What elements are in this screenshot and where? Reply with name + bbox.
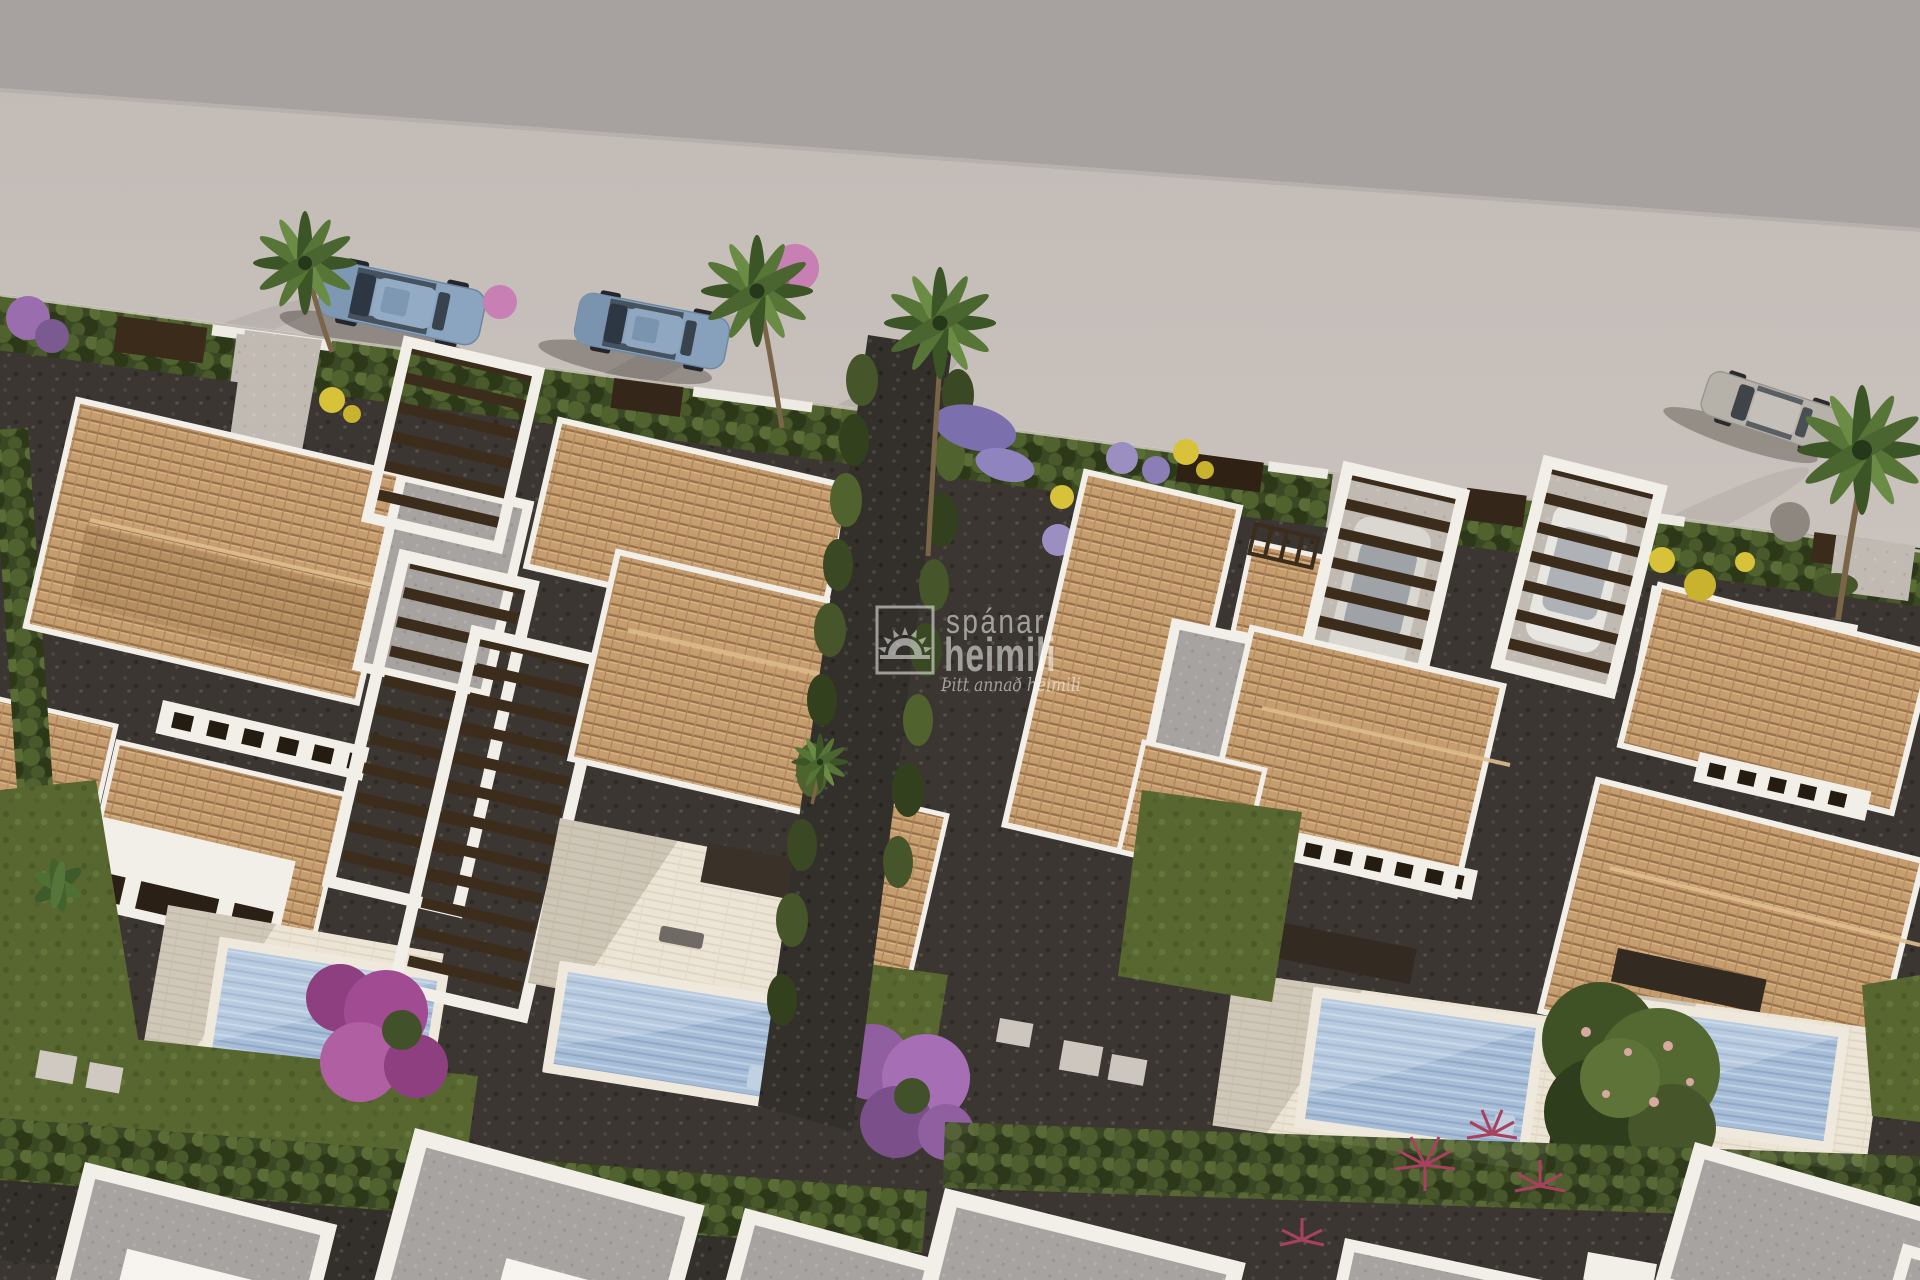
lawn [1118,790,1302,1002]
lavender-ball [1106,442,1138,474]
yellow-flowers [1050,485,1074,509]
lavender-ball [1142,456,1170,484]
yellow-flowers [1735,552,1755,572]
yellow-flowers [1649,547,1675,573]
watermark-brand-line2: heimili [944,629,1056,682]
watermark-tagline: Þitt annað heimili [940,675,1081,697]
gravel-circle [1770,502,1810,542]
yellow-flowers [1196,461,1214,479]
yellow-flowers [1684,569,1716,601]
render-image: spánar heimili Þitt annað heimili [0,0,1920,1280]
yellow-flowers [1173,439,1199,465]
